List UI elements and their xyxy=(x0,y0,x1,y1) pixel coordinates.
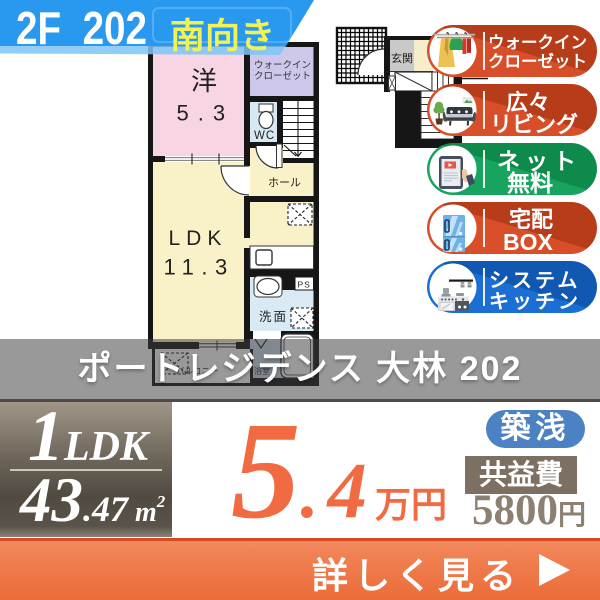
svg-text:システム: システム xyxy=(489,270,580,292)
svg-text:クローゼット: クローゼット xyxy=(488,51,587,71)
svg-text:キッチン: キッチン xyxy=(489,291,581,313)
svg-text:リビング: リビング xyxy=(490,112,578,137)
svg-text:無料: 無料 xyxy=(507,170,553,196)
svg-text:ウォークイン: ウォークイン xyxy=(488,33,587,52)
svg-text:BOX: BOX xyxy=(503,229,554,255)
